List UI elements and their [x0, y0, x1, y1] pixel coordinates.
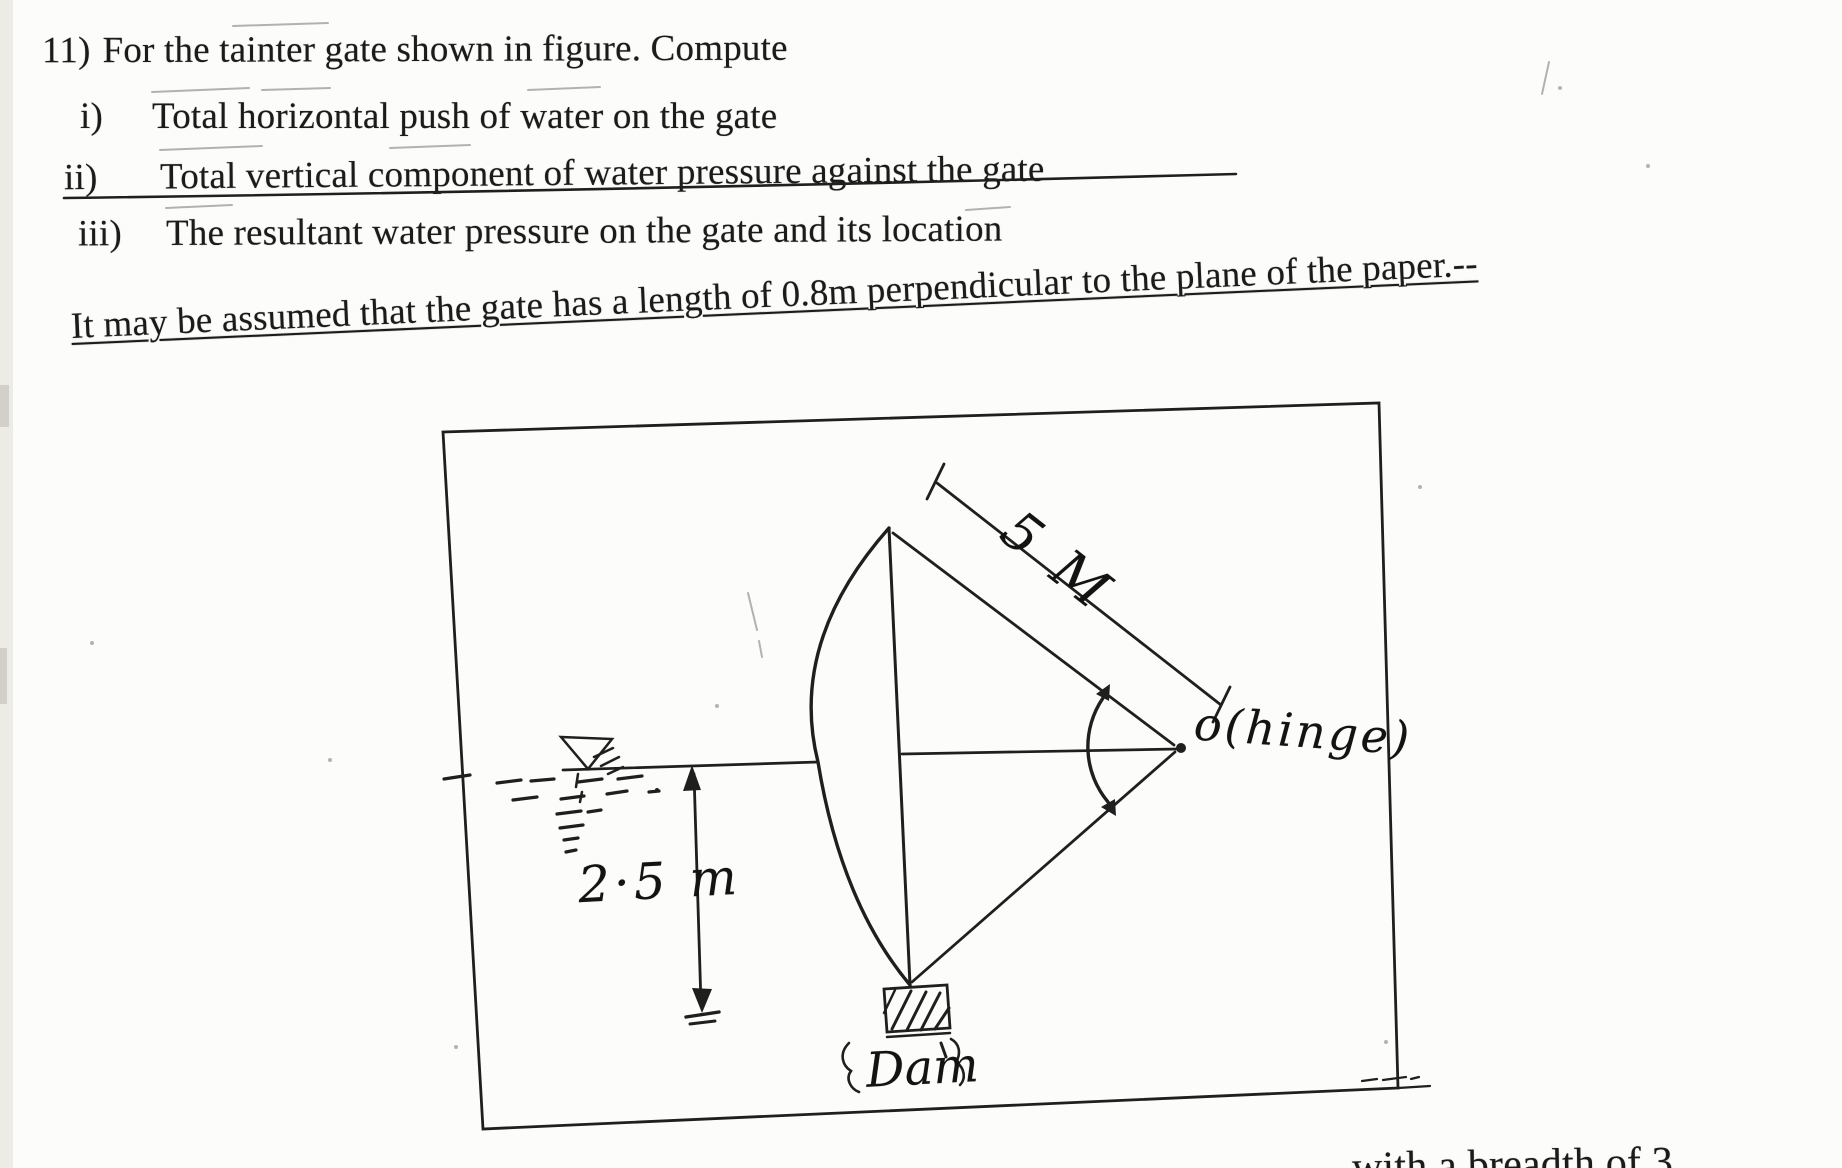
item-iii-label: iii): [78, 212, 166, 255]
hinge-label: o(hinge): [1192, 696, 1413, 765]
gate-radius-lines: [893, 533, 1175, 982]
figure-frame: [443, 403, 1430, 1129]
item-i-text: Total horizontal push of water on the ga…: [152, 96, 777, 137]
problem-heading: 11)For the tainter gate shown in figure.…: [42, 27, 788, 73]
depth-label: 2·5 m: [577, 848, 743, 914]
tainter-gate-shape: [811, 528, 910, 985]
water-surface-dashes: [444, 775, 659, 852]
angle-arc: [1088, 684, 1116, 816]
water-level-icon: [561, 737, 623, 802]
item-ii-text: Total vertical component of water pressu…: [160, 149, 1045, 198]
dam-label: Dam: [865, 1037, 980, 1099]
radius-dimension-label: 5 M: [989, 498, 1126, 624]
water-surface-line: [563, 749, 1177, 770]
problem-item-iii: iii)The resultant water pressure on the …: [78, 208, 1003, 256]
scanned-document-page: 11)For the tainter gate shown in figure.…: [0, 0, 1842, 1168]
item-ii-label: ii): [64, 155, 160, 199]
problem-item-ii: ii)Total vertical component of water pre…: [64, 148, 1045, 200]
hinge-point: [1176, 743, 1186, 753]
item-i-label: i): [80, 95, 152, 138]
problem-title: For the tainter gate shown in figure. Co…: [102, 28, 787, 71]
problem-item-i: i)Total horizontal push of water on the …: [80, 95, 777, 138]
cutoff-next-line: with a breadth of 3: [1352, 1138, 1674, 1168]
item-iii-text: The resultant water pressure on the gate…: [166, 209, 1003, 254]
problem-number: 11): [42, 29, 91, 72]
assumption-line: It may be assumed that the gate has a le…: [70, 242, 1479, 348]
